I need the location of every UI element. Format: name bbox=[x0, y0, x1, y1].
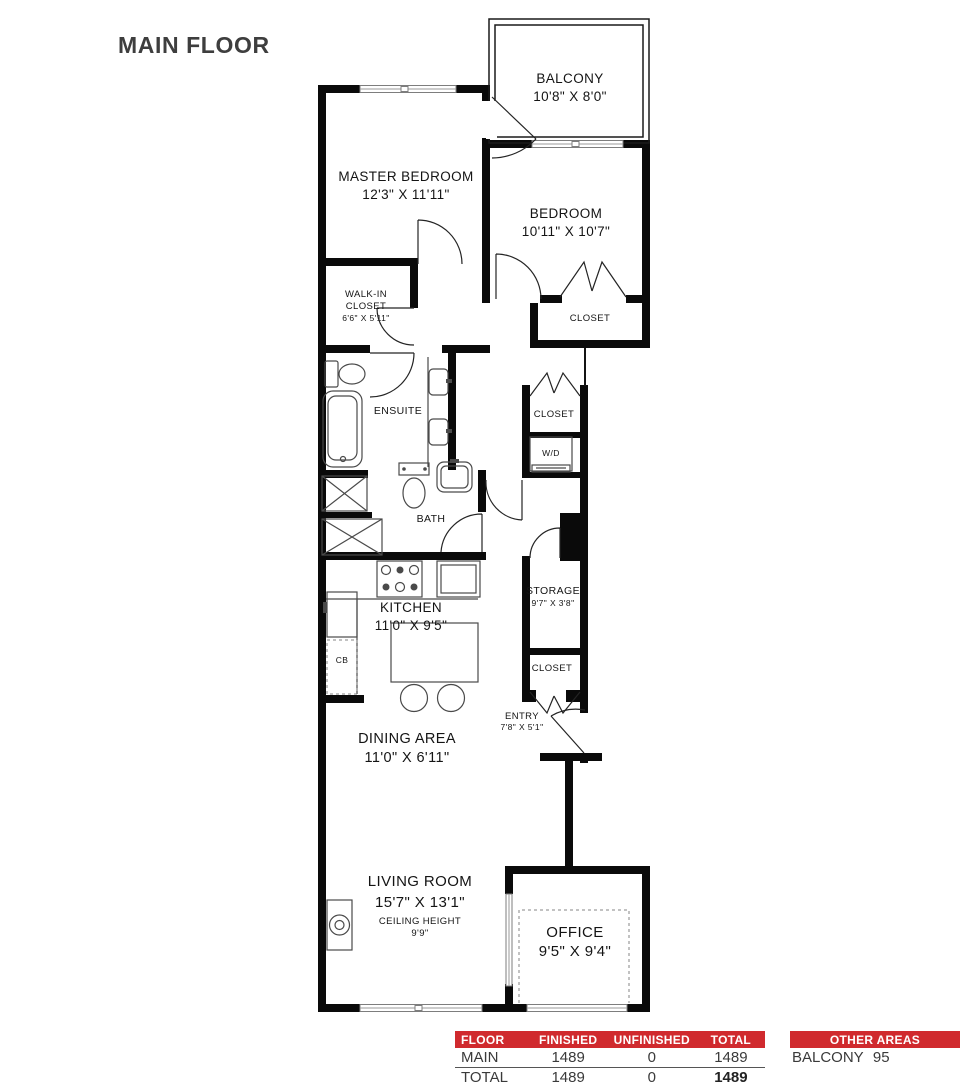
table-row-main: MAIN 1489 0 1489 bbox=[455, 1048, 765, 1068]
cell-floor: MAIN bbox=[455, 1049, 529, 1066]
walk-in-closet-dims: 6'6" X 5'11" bbox=[342, 313, 389, 323]
kitchen-island bbox=[391, 623, 478, 712]
living-room-label: LIVING ROOM bbox=[368, 873, 472, 890]
floorplan-page: MAIN FLOOR bbox=[0, 0, 961, 1092]
fireplace bbox=[327, 900, 352, 950]
walk-in-closet-label: WALK-IN bbox=[345, 289, 387, 300]
closet-doors bbox=[530, 262, 626, 713]
cell-total: 1489 bbox=[697, 1069, 765, 1086]
table-row-balcony: BALCONY 95 bbox=[790, 1048, 960, 1067]
shower-stall bbox=[322, 519, 382, 555]
bedroom-closet-doors bbox=[560, 262, 592, 297]
ceiling-height-value: 9'9" bbox=[411, 928, 428, 939]
table-row-total: TOTAL 1489 0 1489 bbox=[455, 1068, 765, 1087]
kitchen-label: KITCHEN bbox=[380, 600, 442, 615]
bath-toilet bbox=[399, 463, 429, 508]
stove bbox=[377, 561, 422, 597]
hall-closet-label: CLOSET bbox=[534, 409, 574, 420]
entry-label: ENTRY bbox=[505, 711, 539, 722]
header-unfinished: UNFINISHED bbox=[607, 1033, 697, 1047]
stool bbox=[401, 685, 428, 712]
master-bedroom-dims: 12'3" X 11'11" bbox=[362, 187, 449, 202]
kitchen-dims: 11'0" X 9'5" bbox=[375, 618, 448, 633]
entry-closet-label: CLOSET bbox=[532, 663, 572, 674]
living-room-dims: 15'7" X 13'1" bbox=[375, 894, 465, 911]
bedroom-window bbox=[532, 141, 623, 148]
bedroom-door bbox=[496, 254, 541, 299]
bedroom-label: BEDROOM bbox=[530, 206, 603, 221]
floor-plan: BALCONY 10'8" X 8'0" MASTER BEDROOM 12'3… bbox=[0, 0, 961, 1092]
balcony-door bbox=[492, 97, 536, 158]
cell-area-value: 95 bbox=[860, 1049, 903, 1066]
storage-label: STORAGE bbox=[526, 585, 580, 597]
office-window bbox=[527, 1005, 627, 1012]
header-floor: FLOOR bbox=[455, 1033, 529, 1047]
master-window bbox=[360, 86, 456, 93]
master-bedroom-label: MASTER BEDROOM bbox=[338, 169, 473, 184]
hall-door bbox=[486, 480, 522, 520]
balcony-label: BALCONY bbox=[536, 71, 603, 86]
bath-door bbox=[441, 514, 482, 552]
floor-table-header: FLOOR FINISHED UNFINISHED TOTAL bbox=[455, 1031, 765, 1048]
master-bedroom-door bbox=[418, 220, 462, 264]
bath-label: BATH bbox=[417, 513, 446, 525]
header-finished: FINISHED bbox=[529, 1033, 607, 1047]
bedroom-dims: 10'11" X 10'7" bbox=[522, 224, 610, 239]
ensuite-toilet bbox=[325, 361, 365, 387]
storage-dims: 9'7" X 3'8" bbox=[532, 598, 575, 608]
cell-unfinished: 0 bbox=[607, 1069, 697, 1086]
laundry-label: W/D bbox=[542, 448, 560, 458]
bedroom-closet-doors bbox=[592, 262, 626, 297]
bathtub bbox=[323, 391, 362, 467]
ensuite-door bbox=[370, 353, 414, 397]
dining-area-label: DINING AREA bbox=[358, 731, 456, 747]
entry-dims: 7'8" X 5'1" bbox=[501, 722, 544, 732]
floor-area-table: FLOOR FINISHED UNFINISHED TOTAL MAIN 148… bbox=[455, 1031, 765, 1087]
ceiling-height-label: CEILING HEIGHT bbox=[379, 916, 461, 927]
other-areas-table: OTHER AREAS BALCONY 95 bbox=[790, 1031, 960, 1067]
hall-closet-doors bbox=[554, 373, 580, 396]
dining-area-dims: 11'0" X 6'11" bbox=[365, 750, 450, 766]
cell-area-name: BALCONY bbox=[790, 1049, 860, 1066]
shower-stall bbox=[322, 476, 367, 511]
balcony-dims: 10'8" X 8'0" bbox=[533, 89, 607, 104]
office-dims: 9'5" X 9'4" bbox=[539, 943, 612, 960]
cell-finished: 1489 bbox=[529, 1069, 607, 1086]
ensuite-label: ENSUITE bbox=[374, 405, 422, 417]
entry-door bbox=[551, 709, 585, 753]
cell-finished: 1489 bbox=[529, 1049, 607, 1066]
cell-total: 1489 bbox=[697, 1049, 765, 1066]
stool bbox=[438, 685, 465, 712]
cabinet-label: CB bbox=[336, 655, 349, 665]
office-label: OFFICE bbox=[546, 924, 603, 941]
cell-floor: TOTAL bbox=[455, 1069, 529, 1086]
other-areas-header: OTHER AREAS bbox=[790, 1031, 960, 1048]
hall-closet-doors bbox=[530, 373, 554, 396]
office-side-window bbox=[506, 894, 512, 986]
bedroom-closet-label: CLOSET bbox=[570, 313, 610, 324]
walk-in-closet-label: CLOSET bbox=[346, 301, 386, 312]
header-other-areas: OTHER AREAS bbox=[830, 1033, 920, 1047]
fridge bbox=[437, 561, 480, 597]
cell-unfinished: 0 bbox=[607, 1049, 697, 1066]
storage-door bbox=[530, 528, 560, 558]
living-room-window bbox=[360, 1005, 482, 1012]
header-total: TOTAL bbox=[697, 1033, 765, 1047]
